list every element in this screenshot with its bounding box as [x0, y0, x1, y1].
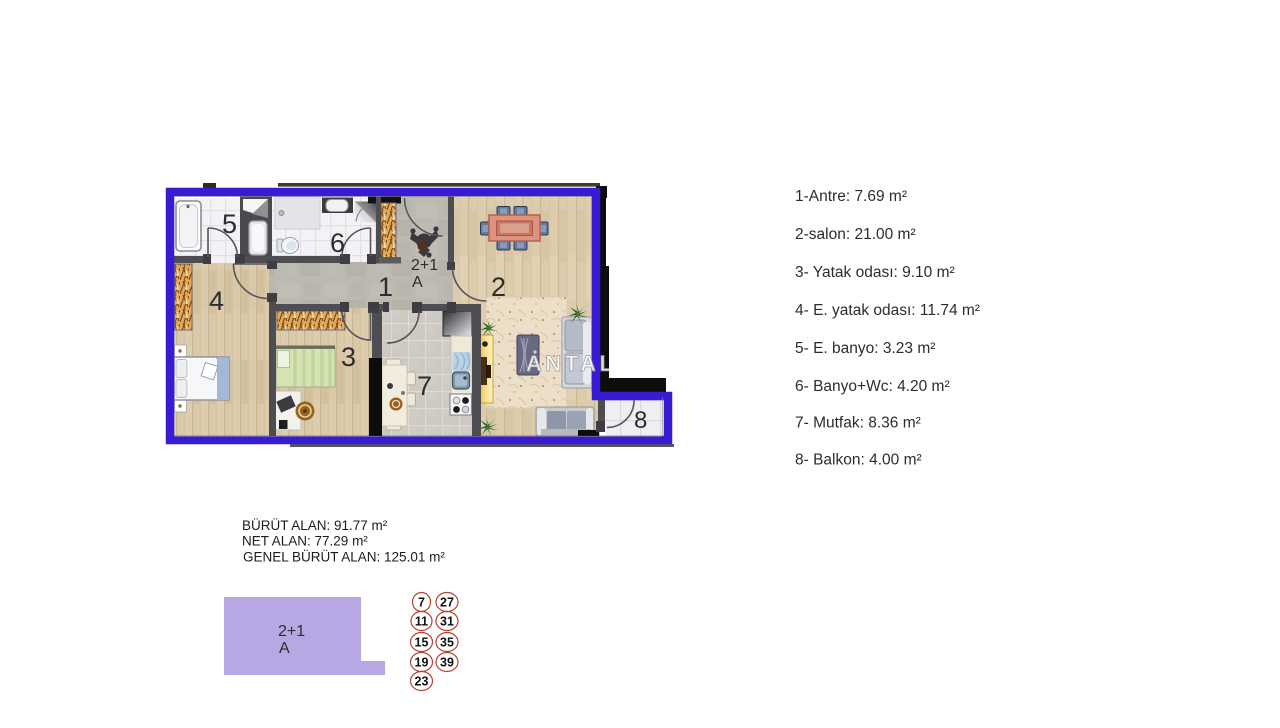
svg-text:6: 6: [330, 228, 345, 258]
svg-text:2+1: 2+1: [411, 257, 438, 274]
svg-text:1-Antre: 7.69 m²: 1-Antre: 7.69 m²: [795, 188, 907, 205]
svg-text:39: 39: [440, 656, 454, 670]
svg-text:7: 7: [417, 371, 432, 401]
svg-text:NET ALAN: 77.29 m²: NET ALAN: 77.29 m²: [242, 534, 368, 549]
svg-text:35: 35: [440, 636, 454, 650]
svg-text:19: 19: [415, 656, 429, 670]
svg-text:27: 27: [440, 596, 454, 610]
svg-text:ANTAL: ANTAL: [526, 351, 616, 376]
svg-text:15: 15: [415, 636, 429, 650]
svg-text:5- E. banyo: 3.23 m²: 5- E. banyo: 3.23 m²: [795, 340, 935, 357]
svg-text:2-salon: 21.00 m²: 2-salon: 21.00 m²: [795, 226, 916, 243]
svg-text:1: 1: [378, 272, 393, 302]
svg-text:5: 5: [222, 209, 237, 239]
svg-text:BÜRÜT ALAN: 91.77 m²: BÜRÜT ALAN: 91.77 m²: [242, 518, 388, 533]
svg-text:11: 11: [415, 615, 428, 629]
svg-text:4: 4: [209, 286, 224, 316]
svg-text:2+1: 2+1: [278, 623, 305, 640]
svg-text:4- E. yatak odası: 11.74 m²: 4- E. yatak odası: 11.74 m²: [795, 302, 980, 319]
svg-text:GENEL BÜRÜT ALAN: 125.01 m²: GENEL BÜRÜT ALAN: 125.01 m²: [243, 550, 445, 565]
svg-text:7- Mutfak: 8.36 m²: 7- Mutfak: 8.36 m²: [795, 415, 921, 432]
svg-text:3: 3: [341, 342, 356, 372]
svg-text:7: 7: [418, 596, 425, 610]
svg-text:6- Banyo+Wc: 4.20 m²: 6- Banyo+Wc: 4.20 m²: [795, 378, 950, 395]
svg-text:8: 8: [634, 407, 647, 434]
svg-text:2: 2: [491, 272, 506, 302]
svg-text:3- Yatak odası: 9.10 m²: 3- Yatak odası: 9.10 m²: [795, 264, 955, 281]
svg-text:A: A: [279, 640, 290, 657]
svg-text:8- Balkon: 4.00 m²: 8- Balkon: 4.00 m²: [795, 452, 922, 469]
svg-text:31: 31: [440, 615, 454, 629]
svg-text:A: A: [412, 274, 423, 291]
svg-text:23: 23: [415, 675, 429, 689]
